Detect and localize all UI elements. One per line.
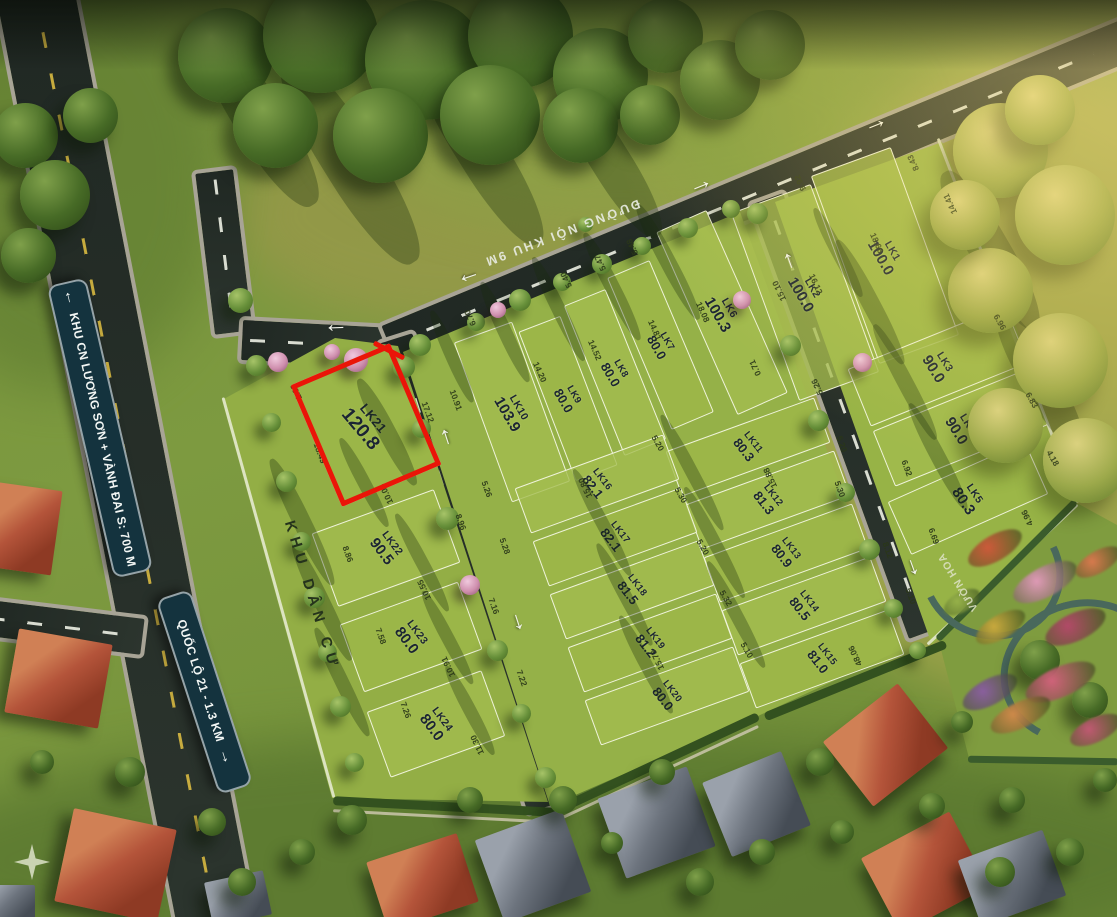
plot-label: LK1180.3 [731, 430, 765, 464]
tree [460, 575, 480, 595]
plot-label: LK2290.5 [367, 528, 406, 567]
tree [324, 344, 340, 360]
tree [649, 759, 675, 785]
tree [228, 868, 256, 896]
plot-label: LK390.0 [919, 347, 957, 386]
tree [735, 10, 805, 80]
plot-label: LK2380.0 [392, 617, 431, 656]
masterplan-image: LK1100.0LK2100.0LK390.0LK490.0LK580.3LK6… [0, 0, 1117, 917]
plot-label: LK1281.3 [751, 483, 785, 517]
house-roof [0, 885, 35, 917]
tree [333, 88, 428, 183]
tree [228, 288, 253, 313]
plot-label: LK1581.0 [805, 642, 839, 676]
tree [985, 857, 1015, 887]
tree [262, 413, 281, 432]
tree [686, 868, 714, 896]
tree [884, 599, 903, 618]
tree [268, 352, 288, 372]
tree [233, 83, 318, 168]
tree [806, 748, 834, 776]
tree [535, 767, 556, 788]
tree [749, 839, 775, 865]
tree [909, 642, 926, 659]
tree [490, 302, 506, 318]
tree [853, 353, 872, 372]
tree [1093, 768, 1117, 792]
tree [601, 832, 623, 854]
tree [289, 839, 315, 865]
tree [678, 218, 698, 238]
tree [951, 711, 973, 733]
tree [20, 160, 90, 230]
up-arrow-icon: ← [59, 287, 80, 307]
tree [549, 786, 577, 814]
tree [487, 640, 508, 661]
tree [246, 355, 267, 376]
house-roof [4, 628, 112, 728]
tree [345, 753, 364, 772]
road-direction-arrow: → [323, 318, 349, 344]
tree [780, 335, 801, 356]
tree [1, 228, 56, 283]
tree [1015, 165, 1115, 265]
tree [115, 757, 145, 787]
tree [733, 291, 751, 309]
tree [509, 289, 531, 311]
tree [63, 88, 118, 143]
down-arrow-icon: → [214, 746, 236, 767]
tree [337, 805, 367, 835]
plot-label: LK980.0 [552, 381, 585, 415]
tree [409, 334, 431, 356]
tree [830, 820, 854, 844]
tree [330, 696, 351, 717]
tree [808, 410, 829, 431]
tree [620, 85, 680, 145]
tree [30, 750, 54, 774]
plot-label: LK1480.5 [787, 589, 821, 623]
tree [747, 203, 768, 224]
tree [0, 103, 58, 168]
tree [999, 787, 1025, 813]
tree [930, 180, 1000, 250]
tree [457, 787, 483, 813]
plot-label: LK10103.9 [491, 389, 533, 435]
tree [722, 200, 740, 218]
tree [919, 793, 945, 819]
tree [1005, 75, 1075, 145]
tree [440, 65, 540, 165]
tree [859, 539, 880, 560]
plot-label: LK2480.0 [417, 704, 456, 743]
tree [543, 88, 618, 163]
tree [276, 471, 297, 492]
tree [948, 248, 1033, 333]
tree [198, 808, 226, 836]
plot-label: LK1380.9 [769, 536, 803, 570]
tree [1056, 838, 1084, 866]
plot-label: LK880.0 [599, 355, 632, 389]
tree [512, 704, 531, 723]
